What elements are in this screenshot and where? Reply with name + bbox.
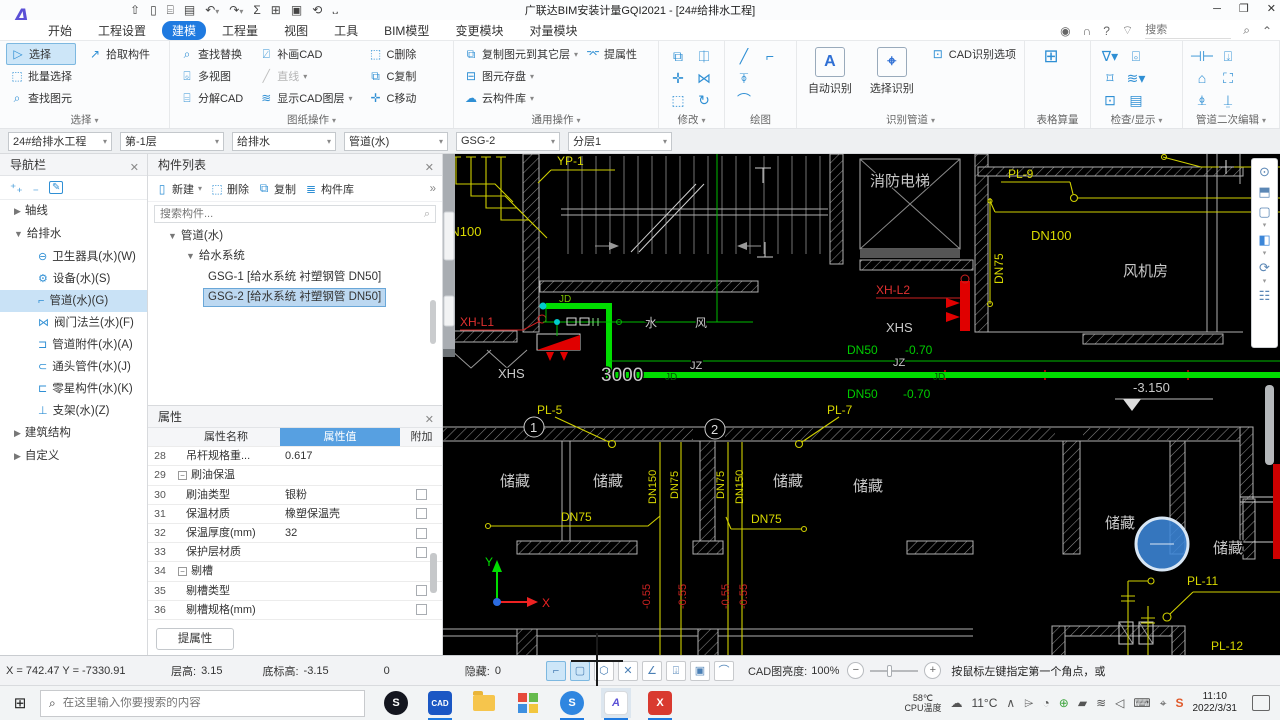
chevron-down-icon[interactable]: ▾ xyxy=(1263,278,1267,285)
group-label-modify[interactable]: 修改 ▾ xyxy=(659,112,724,127)
sogou-tray-icon[interactable]: S xyxy=(1175,696,1183,710)
ribbon: ▷选择 ⬚批量选择 ⌕查找图元 ↗拾取构件 选择 ▾ ⌕查找替换 ⌺多视图 ⌸分… xyxy=(0,41,1280,129)
close-nav-icon[interactable]: ✕ xyxy=(130,157,139,179)
app-file-explorer[interactable] xyxy=(469,688,499,718)
svg-text:X: X xyxy=(542,596,550,610)
patch-cad-icon: ⍁ xyxy=(259,47,273,62)
grid-icon xyxy=(518,693,538,713)
equipment-icon: ⚙ xyxy=(38,273,48,285)
taskbar-search-icon: ⌕ xyxy=(49,696,56,711)
line-icon: ╱ xyxy=(259,69,273,83)
ribbon-group-modify: ⧉⎅ ✛⋈ ⬚↻ 修改 ▾ xyxy=(659,41,725,128)
notification-icon[interactable] xyxy=(1252,695,1270,711)
hidden-value: 0 xyxy=(495,665,501,677)
close-components-icon[interactable]: ✕ xyxy=(425,157,434,179)
cross-mode-button[interactable]: ✕ xyxy=(618,661,638,681)
nav-item-pipe-accessory[interactable]: ⊐管道附件(水)(A) xyxy=(0,334,147,356)
headset-icon[interactable]: ∩ xyxy=(1083,24,1092,38)
svg-text:DN50: DN50 xyxy=(847,343,878,357)
keyboard-icon[interactable]: ⌨ xyxy=(1133,696,1150,710)
extract-property-icon: ⌤ xyxy=(586,47,600,61)
svg-text:DN75: DN75 xyxy=(715,471,727,499)
user-icon[interactable]: ◉ xyxy=(1060,24,1070,38)
microphone-icon[interactable]: ⌲ xyxy=(1024,696,1033,711)
view-cube-icon[interactable]: ▢ xyxy=(1258,202,1270,221)
explode-cad-button[interactable]: ⌸分解CAD xyxy=(176,87,247,109)
filter-icon[interactable]: ∇▾ xyxy=(1102,48,1118,65)
ucs-axis-icon: Y X xyxy=(485,555,550,610)
canvas-scrollbar[interactable] xyxy=(1265,385,1274,465)
nav-item-valve-flange[interactable]: ⋈阀门法兰(水)(F) xyxy=(0,312,147,334)
nav-item-support[interactable]: ⊥支架(水)(Z) xyxy=(0,400,147,422)
find-element-icon: ⌕ xyxy=(10,91,24,106)
svg-text:PL-5: PL-5 xyxy=(537,403,563,417)
new-component-icon: ▯ xyxy=(156,182,168,196)
cad-copy-icon: ⧉ xyxy=(368,69,382,84)
close-properties-icon[interactable]: ✕ xyxy=(425,409,434,431)
cad-delete-icon: ⬚ xyxy=(368,47,382,61)
svg-text:2: 2 xyxy=(711,422,718,437)
support-icon: ⊥ xyxy=(38,405,48,417)
cad-yellow-pipes xyxy=(451,155,1280,656)
level-marker xyxy=(1115,399,1213,411)
pipe-icon: ⌐ xyxy=(38,295,44,307)
properties-table: 属性名称 属性值 附加 28吊杆规格重...0.617 29−刷油保温 30刷油… xyxy=(148,428,442,620)
canvas-left-strip xyxy=(443,154,455,357)
ribbon-group-table: ⊞ 表格算量 xyxy=(1025,41,1091,128)
svg-text:XH-L2: XH-L2 xyxy=(876,283,910,297)
pipe-valve-icon[interactable]: ⍎ xyxy=(1198,92,1206,109)
select-icon: ▷ xyxy=(11,47,25,61)
svg-text:Y: Y xyxy=(485,555,493,569)
center-icon[interactable]: ⌖ xyxy=(1160,696,1167,711)
cad-identify-options-button[interactable]: ⊡CAD识别选项 xyxy=(927,43,1020,65)
app-window: A ⇧ ▯ ⌸ ▤ ↶▾ ↷▾ Σ ⊞ ▣ ⟲ ᎑ 广联达BIM安装计量GQI2… xyxy=(0,0,1280,720)
pipe-frame-icon[interactable]: ⛶ xyxy=(1223,70,1233,87)
cad-canvas[interactable]: YP-1 DN100 PL-9 DN100 DN75 PL-5 PL-7 DN1… xyxy=(443,154,1280,655)
explode-cad-icon: ⌸ xyxy=(180,91,194,106)
svg-text:YP-1: YP-1 xyxy=(557,154,584,168)
cad-move-button[interactable]: ✛C移动 xyxy=(364,87,420,109)
app-store[interactable] xyxy=(513,688,543,718)
folder-icon xyxy=(473,695,495,711)
collapse-ribbon-icon[interactable]: ⌃ xyxy=(1262,24,1272,38)
check-element-icon[interactable]: ⊡ xyxy=(1104,92,1116,109)
properties-scrollbar[interactable] xyxy=(430,553,437,593)
window-controls: ─ ❐ ✕ xyxy=(1213,0,1276,18)
extra-checkbox[interactable] xyxy=(416,489,427,500)
floor-height-label: 层高: xyxy=(171,663,196,679)
ortho-mode-button[interactable]: ⌐ xyxy=(546,661,566,681)
svg-text:XHS: XHS xyxy=(886,320,913,335)
svg-text:XHS: XHS xyxy=(498,366,525,381)
chevron-down-icon[interactable]: ▾ xyxy=(1263,222,1267,229)
draw-line-icon[interactable]: ╱ xyxy=(740,48,748,65)
tree-item-gsg2[interactable]: GSG-2 [给水系统 衬塑钢管 DN50] xyxy=(204,289,385,306)
sanitary-icon: ⊖ xyxy=(38,251,47,263)
svg-text:PL-9: PL-9 xyxy=(1008,167,1034,181)
nav-item-pipe[interactable]: ⌐管道(水)(G) xyxy=(0,290,147,312)
cad-identify-options-icon: ⊡ xyxy=(931,47,945,61)
table-quantity-icon[interactable]: ⊞ xyxy=(1043,46,1058,67)
properties-title: 属性 ✕ xyxy=(148,406,442,428)
copy-to-layer-icon: ⧉ xyxy=(464,47,478,62)
taskbar-search[interactable]: ⌕ xyxy=(40,690,365,717)
svg-text:3000: 3000 xyxy=(601,365,643,386)
save-element-icon: ⊟ xyxy=(464,69,478,83)
component-library-icon: ≣ xyxy=(305,182,317,196)
more-tools-button[interactable]: » xyxy=(430,183,436,195)
tab-modeling[interactable]: 建模 xyxy=(162,21,206,40)
svg-text:PL-11: PL-11 xyxy=(1187,574,1218,588)
svg-text:储藏: 储藏 xyxy=(1105,515,1135,532)
extra-checkbox[interactable] xyxy=(416,547,427,558)
restore-button[interactable]: ❐ xyxy=(1239,0,1249,18)
nav-item-custom[interactable]: ▶自定义 xyxy=(0,445,147,468)
group-label-draw: 绘图 xyxy=(725,112,796,127)
battery-icon[interactable]: ▰ xyxy=(1078,696,1087,710)
select-identify-icon: ⌖ xyxy=(877,47,907,77)
group-label-pipe-edit[interactable]: 管道二次编辑 ▾ xyxy=(1183,112,1279,127)
show-cad-layers-icon: ≋ xyxy=(259,91,273,105)
extra-checkbox[interactable] xyxy=(416,585,427,596)
app-skype[interactable]: S xyxy=(557,688,587,718)
close-button[interactable]: ✕ xyxy=(1267,0,1276,18)
layer-selector[interactable]: 分层1▾ xyxy=(568,132,672,151)
property-row[interactable]: 31保温材质橡塑保温壳 xyxy=(148,505,442,524)
expand-all-icon[interactable]: ⁺₊ xyxy=(10,181,23,195)
view-3d-icon[interactable]: ⬒ xyxy=(1258,182,1270,201)
nav-item-plumbing[interactable]: ▼给排水 xyxy=(0,223,147,246)
draw-arc-icon[interactable]: ⌒ xyxy=(737,90,751,110)
group-label-check[interactable]: 检查/显示 ▾ xyxy=(1091,112,1182,127)
group-label-table[interactable]: 表格算量 xyxy=(1025,112,1090,127)
modify-delete-icon[interactable]: ⬚ xyxy=(671,92,684,109)
svg-text:-0.55: -0.55 xyxy=(677,584,689,609)
extra-checkbox[interactable] xyxy=(416,604,427,615)
tab-tools[interactable]: 工具 xyxy=(324,21,368,40)
app-glodon[interactable]: A xyxy=(601,688,631,718)
copy-to-layer-button[interactable]: ⧉复制图元到其它层▾ xyxy=(460,43,582,65)
status-bar: X = 742.47 Y = -7330.91 层高: 3.15 底标高: -3… xyxy=(0,655,1280,685)
modify-mirror-icon[interactable]: ⋈ xyxy=(697,70,711,87)
base-elevation-value: -3.15 xyxy=(304,665,329,677)
ribbon-group-sheet: ⌕查找替换 ⌺多视图 ⌸分解CAD ⍁补画CAD ╱直线▾ ≋显示CAD图层▾ … xyxy=(170,41,454,128)
pipe-accessory-icon: ⊐ xyxy=(38,339,47,351)
ribbon-group-common: ⧉复制图元到其它层▾ ⌤提属性 ⊟图元存盘▾ ☁云构件库▾ 通用操作 ▾ xyxy=(454,41,659,128)
modify-copy-icon[interactable]: ⧉ xyxy=(673,48,683,65)
component-library-button[interactable]: ≣构件库 xyxy=(305,178,354,200)
svg-text:储藏: 储藏 xyxy=(500,473,530,490)
ribbon-group-pipe-edit: ⊣⊢⍗ ⌂⛶ ⍎⍊ 管道二次编辑 ▾ xyxy=(1183,41,1280,128)
cad-drawing: YP-1 DN100 PL-9 DN100 DN75 PL-5 PL-7 DN1… xyxy=(443,154,1280,655)
window-title: 广联达BIM安装计量GQI2021 - [24#给排水工程] xyxy=(0,2,1280,18)
modify-offset-icon[interactable]: ⎅ xyxy=(698,48,709,65)
brightness-label: CAD图亮度: xyxy=(748,663,807,679)
select-identify-button[interactable]: ⌖ 选择识别 xyxy=(865,43,919,112)
svg-text:1: 1 xyxy=(530,420,537,435)
find-replace-button[interactable]: ⌕查找替换 xyxy=(176,43,247,65)
svg-text:-0.55: -0.55 xyxy=(641,584,653,609)
weather-icon[interactable]: ☁ xyxy=(950,696,962,710)
properties-panel: 属性 ✕ 属性名称 属性值 附加 28吊杆规格重...0.617 29−刷油保温… xyxy=(148,405,442,655)
windows-taskbar: ⊞ ⌕ S CAD S A X 58℃CPU温度 ☁ 11°C ∧ ⌲ ◔ ⊕ … xyxy=(0,685,1280,720)
show-cad-layers-button[interactable]: ≋显示CAD图层▾ xyxy=(255,87,356,109)
taskbar-apps: S CAD S A X xyxy=(381,688,675,718)
tree-item-gsg1[interactable]: GSG-1 [给水系统 衬塑钢管 DN50] xyxy=(204,269,385,286)
new-component-button[interactable]: ▯新建▾ xyxy=(156,178,202,200)
tab-bim-model[interactable]: BIM模型 xyxy=(374,21,439,40)
display-setting-icon[interactable]: ≋▾ xyxy=(1127,70,1146,87)
tab-view[interactable]: 视图 xyxy=(274,21,318,40)
component-search: ⌕ xyxy=(154,205,436,223)
svg-text:DN75: DN75 xyxy=(992,253,1006,284)
pick-component-button[interactable]: ↗拾取构件 xyxy=(84,43,154,65)
check-region-icon[interactable]: ⌑ xyxy=(1106,70,1113,87)
app-sougou[interactable]: S xyxy=(381,688,411,718)
bell-icon[interactable]: ◔ xyxy=(1043,696,1050,710)
property-row[interactable]: 32保温厚度(mm)32 xyxy=(148,524,442,543)
floor-height-value: 3.15 xyxy=(201,665,222,677)
component-type-selector[interactable]: 管道(水)▾ xyxy=(344,132,448,151)
component-scrollbar[interactable] xyxy=(430,300,436,344)
taskbar-clock[interactable]: 11:102022/3/31 xyxy=(1193,691,1238,716)
svg-text:-0.70: -0.70 xyxy=(905,343,933,357)
svg-text:-3.150: -3.150 xyxy=(1133,380,1170,395)
svg-text:JD: JD xyxy=(665,372,677,383)
batch-select-icon: ⬚ xyxy=(10,69,24,83)
cursor-highlight xyxy=(1136,518,1188,570)
extract-property-button-bottom[interactable]: 提属性 xyxy=(156,628,234,650)
app-excel[interactable]: X xyxy=(645,688,675,718)
patch-cad-button[interactable]: ⍁补画CAD xyxy=(255,43,356,65)
svg-text:DN150: DN150 xyxy=(734,470,746,504)
select-button[interactable]: ▷选择 xyxy=(6,43,76,65)
ribbon-group-select: ▷选择 ⬚批量选择 ⌕查找图元 ↗拾取构件 选择 ▾ xyxy=(0,41,170,128)
tree-node-water-system[interactable]: ▼给水系统 xyxy=(148,246,442,266)
nav-tree: ▶轴线 ▼给排水 ⊖卫生器具(水)(W) ⚙设备(水)(S) ⌐管道(水)(G)… xyxy=(0,200,147,468)
weather-temp[interactable]: 11°C xyxy=(971,696,997,710)
cad-walls xyxy=(443,154,1280,655)
group-label-select[interactable]: 选择 ▾ xyxy=(0,112,169,127)
nav-item-equipment[interactable]: ⚙设备(水)(S) xyxy=(0,268,147,290)
navigation-panel: 导航栏 ✕ ⁺₊ ₋ ✎ ▶轴线 ▼给排水 ⊖卫生器具(水)(W) ⚙设备(水)… xyxy=(0,154,148,655)
cursor-coordinates: X = 742.47 Y = -7330.91 xyxy=(6,665,171,677)
svg-text:风机房: 风机房 xyxy=(1123,263,1168,280)
angle-snap-button[interactable]: ∠ xyxy=(642,661,662,681)
modify-rotate-icon[interactable]: ↻ xyxy=(698,92,710,109)
component-search-icon[interactable]: ⌕ xyxy=(424,208,430,221)
copy-component-icon: ⧉ xyxy=(258,181,270,196)
brightness-slider[interactable] xyxy=(870,670,918,672)
view-toolbar: ⊙ ⬒ ▢ ▾ ◧ ▾ ⟳ ▾ ☷ xyxy=(1251,158,1278,348)
arc-button[interactable]: ⌒ xyxy=(714,661,734,681)
tree-node-pipe[interactable]: ▼管道(水) xyxy=(148,226,442,246)
valve-flange-icon: ⋈ xyxy=(38,317,49,329)
edit-icon[interactable]: ✎ xyxy=(49,181,63,194)
find-replace-icon: ⌕ xyxy=(180,47,194,62)
shaded-cube-icon[interactable]: ◧ xyxy=(1258,230,1270,249)
feedback-icon[interactable]: ⌔ xyxy=(1122,23,1133,38)
status-zero: 0 xyxy=(384,665,390,677)
command-hint: 按鼠标左键指定第一个角点，或 xyxy=(951,663,1105,679)
pick-component-icon: ↗ xyxy=(88,47,102,61)
properties-header: 属性名称 属性值 附加 xyxy=(148,428,442,447)
object-snap-button[interactable]: ▢ xyxy=(570,661,590,681)
auto-identify-button[interactable]: A 自动识别 xyxy=(803,43,857,112)
svg-text:PL-12: PL-12 xyxy=(1211,639,1243,653)
taskbar-search-input[interactable] xyxy=(63,697,356,709)
copy-component-button[interactable]: ⧉复制 xyxy=(258,178,296,200)
pipe-break-icon[interactable]: ⊣⊢ xyxy=(1190,48,1214,65)
svg-text:风: 风 xyxy=(695,316,707,330)
collapse-group-icon[interactable]: − xyxy=(178,567,187,576)
svg-text:-0.55: -0.55 xyxy=(738,584,750,609)
tab-compare-module[interactable]: 对量模块 xyxy=(519,21,587,40)
antivirus-icon[interactable]: ⊕ xyxy=(1059,696,1069,710)
auto-identify-icon: A xyxy=(815,47,845,77)
extract-property-button[interactable]: ⌤提属性 xyxy=(582,43,641,65)
nav-item-building[interactable]: ▶建筑结构 xyxy=(0,422,147,445)
extra-checkbox[interactable] xyxy=(416,528,427,539)
base-elevation-label: 底标高: xyxy=(262,663,298,679)
orbit-icon[interactable]: ⊙ xyxy=(1259,162,1270,181)
svg-text:DN150: DN150 xyxy=(647,470,659,504)
nav-toolbar: ⁺₊ ₋ ✎ xyxy=(0,176,147,200)
wifi-icon[interactable]: ≋ xyxy=(1096,696,1106,710)
view-settings-icon[interactable]: ☷ xyxy=(1259,286,1271,305)
draw-vertical-icon[interactable]: ⍕ xyxy=(740,70,748,87)
chevron-down-icon[interactable]: ▾ xyxy=(1263,250,1267,257)
property-row[interactable]: 29−刷油保温 xyxy=(148,466,442,485)
group-label-sheet[interactable]: 图纸操作 ▾ xyxy=(170,112,453,127)
svg-text:DN75: DN75 xyxy=(561,510,592,524)
middle-panel: 构件列表 ✕ ▯新建▾ ⬚删除 ⧉复制 ≣构件库 » ⌕ ▼管道(水) ▼给水系… xyxy=(148,154,443,655)
cpu-temp: 58℃CPU温度 xyxy=(904,693,941,714)
tab-quantity[interactable]: 工程量 xyxy=(212,21,268,40)
ribbon-search-input[interactable] xyxy=(1145,23,1231,39)
search-icon[interactable]: ⌕ xyxy=(1243,23,1250,38)
delete-component-button[interactable]: ⬚删除 xyxy=(211,178,249,200)
find-element-button[interactable]: ⌕查找图元 xyxy=(6,87,76,109)
navigation-title: 导航栏 ✕ xyxy=(0,154,147,176)
nav-item-axis[interactable]: ▶轴线 xyxy=(0,200,147,223)
floor-selector[interactable]: 第-1层▾ xyxy=(120,132,224,151)
property-row[interactable]: 33保护层材质 xyxy=(148,543,442,562)
system-tray: 58℃CPU温度 ☁ 11°C ∧ ⌲ ◔ ⊕ ▰ ≋ ◁ ⌨ ⌖ S 11:1… xyxy=(904,691,1280,716)
svg-text:DN75: DN75 xyxy=(751,512,782,526)
start-button[interactable]: ⊞ xyxy=(0,694,40,712)
cloud-library-button[interactable]: ☁云构件库▾ xyxy=(460,87,641,109)
pipe-fitting-icon: ⊂ xyxy=(38,361,47,373)
svg-text:JZ: JZ xyxy=(893,357,906,369)
svg-text:DN75: DN75 xyxy=(669,471,681,499)
cad-copy-button[interactable]: ⧉C复制 xyxy=(364,65,420,87)
svg-text:XH-L1: XH-L1 xyxy=(460,315,494,329)
point-input-button[interactable]: ⍗ xyxy=(666,661,686,681)
measure-icon[interactable]: ▤ xyxy=(1129,92,1142,109)
component-search-input[interactable] xyxy=(160,208,424,220)
line-button: ╱直线▾ xyxy=(255,65,356,87)
component-tree: ▼管道(水) ▼给水系统 GSG-1 [给水系统 衬塑钢管 DN50] GSG-… xyxy=(148,226,442,306)
app-cad[interactable]: CAD xyxy=(425,688,455,718)
svg-text:水: 水 xyxy=(645,316,657,330)
title-bar: A ⇧ ▯ ⌸ ▤ ↶▾ ↷▾ Σ ⊞ ▣ ⟲ ᎑ 广联达BIM安装计量GQI2… xyxy=(0,0,1280,20)
component-selector[interactable]: GSG-2▾ xyxy=(456,132,560,151)
pipe-trim-icon[interactable]: ⍊ xyxy=(1224,92,1232,109)
cad-move-icon: ✛ xyxy=(368,91,382,105)
delete-component-icon: ⬚ xyxy=(211,182,223,196)
collapse-all-icon[interactable]: ₋ xyxy=(33,181,39,195)
modify-move-icon[interactable]: ✛ xyxy=(672,70,684,87)
nav-item-misc-component[interactable]: ⊏零星构件(水)(K) xyxy=(0,378,147,400)
svg-text:DN50: DN50 xyxy=(847,387,878,401)
property-row[interactable]: 34−剔槽 xyxy=(148,562,442,581)
component-toolbar: ▯新建▾ ⬚删除 ⧉复制 ≣构件库 » xyxy=(148,176,442,202)
property-row[interactable]: 35剔槽类型 xyxy=(148,582,442,601)
draw-pipe-icon[interactable]: ⌐ xyxy=(766,48,774,64)
crosshair-cursor xyxy=(571,660,623,662)
tab-change-module[interactable]: 变更模块 xyxy=(445,21,513,40)
nav-item-sanitary[interactable]: ⊖卫生器具(水)(W) xyxy=(0,246,147,268)
hidden-label: 隐藏: xyxy=(465,663,490,679)
minimize-button[interactable]: ─ xyxy=(1213,0,1221,18)
extra-checkbox[interactable] xyxy=(416,508,427,519)
cloud-library-icon: ☁ xyxy=(464,91,478,105)
svg-text:DN100: DN100 xyxy=(1031,228,1071,243)
nav-item-pipe-fitting[interactable]: ⊂通头管件(水)(J) xyxy=(0,356,147,378)
project-selector[interactable]: 24#给排水工程▾ xyxy=(8,132,112,151)
svg-text:JD: JD xyxy=(933,372,945,383)
rotate-view-icon[interactable]: ⟳ xyxy=(1259,258,1270,277)
misc-component-icon: ⊏ xyxy=(38,383,47,395)
group-label-identify[interactable]: 识别管道 ▾ xyxy=(797,112,1024,127)
pipe-brush-icon[interactable]: ⌂ xyxy=(1198,70,1206,86)
volume-icon[interactable]: ◁ xyxy=(1115,696,1124,710)
check-model-icon[interactable]: ⌻ xyxy=(1132,48,1140,65)
svg-text:-0.70: -0.70 xyxy=(903,387,931,401)
brightness-plus-button[interactable]: + xyxy=(924,662,941,679)
group-label-common[interactable]: 通用操作 ▾ xyxy=(454,112,658,127)
specialty-selector[interactable]: 给排水▾ xyxy=(232,132,336,151)
tray-expand-icon[interactable]: ∧ xyxy=(1006,696,1015,710)
ribbon-group-draw: ╱⌐ ⍕ ⌒ 绘图 xyxy=(725,41,797,128)
property-row[interactable]: 30刷油类型银粉 xyxy=(148,486,442,505)
cad-delete-button[interactable]: ⬚C删除 xyxy=(364,43,420,65)
svg-text:储藏: 储藏 xyxy=(773,473,803,490)
svg-text:储藏: 储藏 xyxy=(593,473,623,490)
tab-start[interactable]: 开始 xyxy=(38,21,82,40)
property-row[interactable]: 28吊杆规格重...0.617 xyxy=(148,447,442,466)
help-icon[interactable]: ? xyxy=(1103,24,1110,38)
multi-view-icon: ⌺ xyxy=(180,69,194,84)
svg-text:JZ: JZ xyxy=(690,360,703,372)
image-button[interactable]: ▣ xyxy=(690,661,710,681)
collapse-group-icon[interactable]: − xyxy=(178,471,187,480)
svg-text:消防电梯: 消防电梯 xyxy=(870,173,930,190)
tab-project-settings[interactable]: 工程设置 xyxy=(88,21,156,40)
svg-text:-0.55: -0.55 xyxy=(720,584,732,609)
batch-select-button[interactable]: ⬚批量选择 xyxy=(6,65,76,87)
multi-view-button[interactable]: ⌺多视图 xyxy=(176,65,247,87)
brightness-minus-button[interactable]: − xyxy=(847,662,864,679)
pipe-extend-icon[interactable]: ⍗ xyxy=(1224,48,1232,65)
save-element-button[interactable]: ⊟图元存盘▾ xyxy=(460,65,641,87)
ribbon-group-identify: A 自动识别 ⌖ 选择识别 ⊡CAD识别选项 识别管道 ▾ xyxy=(797,41,1025,128)
property-row[interactable]: 36剔槽规格(mm) xyxy=(148,601,442,620)
context-bar: 24#给排水工程▾ 第-1层▾ 给排水▾ 管道(水)▾ GSG-2▾ 分层1▾ xyxy=(0,129,1280,154)
brightness-value: 100% xyxy=(811,665,839,677)
